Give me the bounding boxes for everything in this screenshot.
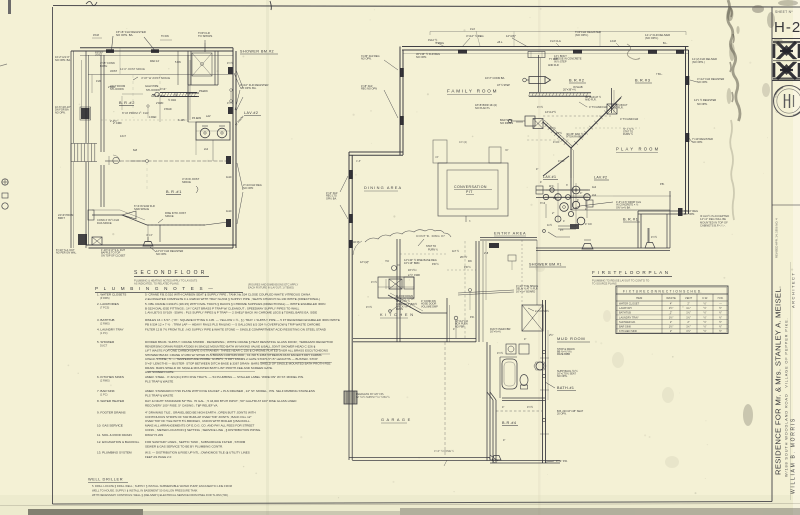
svg-text:S E C O N D F L O O R: S E C O N D F L O O R [134, 270, 205, 276]
svg-text:7. BAR SINK: 7. BAR SINK [97, 389, 116, 393]
svg-text:REVISED APR. 14, 1956 NO. 4: REVISED APR. 14, 1956 NO. 4 [775, 218, 779, 258]
svg-text:+B.L.: +B.L. [497, 41, 503, 44]
svg-text:4'-8": 4'-8" [356, 160, 361, 163]
svg-text:7 B.L.: 7 B.L. [656, 73, 663, 76]
svg-text:B.R.#1: B.R.#1 [166, 189, 182, 194]
svg-text:4": 4" [503, 439, 505, 442]
svg-text:NO OPN. BA.: NO OPN. BA. [116, 33, 134, 37]
svg-text:NO OPN: NO OPN [243, 186, 253, 190]
svg-text:2'CRD: 2'CRD [108, 86, 115, 89]
svg-text:3"×4: 3"×4 [540, 202, 546, 205]
svg-text:5. SHOWER: 5. SHOWER [97, 340, 115, 344]
svg-text:4"×4": 4"×4" [160, 87, 166, 91]
svg-text:LAV: LAV [206, 115, 211, 118]
svg-text:CABINETS B.P.¹,²,³,⁴.: CABINETS B.P.¹,²,³,⁴. [700, 224, 726, 228]
svg-text:ON ½×½ BA.: ON ½×½ BA. [616, 205, 631, 209]
svg-text:B.R.#2: B.R.#2 [569, 78, 584, 83]
svg-text:4"×½: 4"×½ [227, 101, 234, 105]
svg-text:4x10: 4x10 [226, 210, 232, 213]
svg-text:W/188 SOUTH WOODLAND ROAD VI: W/188 SOUTH WOODLAND ROAD VILLAGE OF PEP… [784, 318, 789, 477]
svg-text:16"×16" BRD.: 16"×16" BRD. [404, 261, 420, 265]
svg-text:RESIDENCE FOR Mr. & Mrs. ST: RESIDENCE FOR Mr. & Mrs. STANLEY A. MEIS… [774, 286, 783, 475]
svg-text:REG NO OPN: REG NO OPN [361, 88, 377, 91]
svg-text:4"RAD: 4"RAD [164, 108, 172, 111]
svg-text:4"×½: 4"×½ [366, 305, 373, 309]
svg-text:½": ½" [703, 320, 706, 324]
svg-text:P.D.½: P.D.½ [432, 262, 440, 266]
svg-text:AND FLR: AND FLR [548, 64, 559, 67]
svg-text:4" TO AND FLR: 4" TO AND FLR [620, 117, 638, 121]
svg-text:½": ½" [703, 306, 706, 310]
svg-text:WC: WC [553, 197, 557, 200]
svg-text:TO SPKRS: TO SPKRS [198, 34, 212, 38]
svg-text:4"×12" ½ REG: 4"×12" ½ REG [466, 34, 484, 38]
svg-text:NO PLAN TL: NO PLAN TL [475, 106, 491, 110]
svg-text:½": ½" [703, 301, 706, 305]
svg-text:4"×½: 4"×½ [497, 351, 504, 355]
svg-text:BOTH: BOTH [100, 64, 107, 68]
svg-text:12"×(8)″: 12"×(8)″ [506, 34, 516, 38]
svg-text:2": 2" [552, 212, 554, 215]
svg-text:5 DN: 5 DN [175, 61, 181, 64]
svg-text:ON TOP OF CLOSET: ON TOP OF CLOSET [101, 254, 126, 257]
svg-text:11. SOIL & ROOF DRAIN: 11. SOIL & ROOF DRAIN [97, 433, 132, 437]
svg-text:PLAY ROOM: PLAY ROOM [616, 147, 660, 152]
svg-text:VOLUME DMP: VOLUME DMP [421, 305, 438, 308]
svg-text:NO OPN.: NO OPN. [55, 111, 66, 114]
svg-text:(NO OPN.): (NO OPN.) [645, 36, 658, 40]
svg-text:ARCHITECT: ARCHITECT [791, 272, 796, 308]
svg-text:WELL TO HOUSE. SUPPLY § INSTA: WELL TO HOUSE. SUPPLY § INSTALL IN BASEM… [92, 488, 198, 492]
svg-text:4. LAUNDRY TRAY: 4. LAUNDRY TRAY [97, 328, 124, 332]
svg-text:2": 2" [687, 320, 689, 324]
svg-text:½": ½" [719, 329, 722, 333]
svg-text:1 AN·LB70 5 SY109 · 55W½ :: 1 AN·LB70 5 SY109 · 55W½ : PLS SUPPLY PI… [145, 311, 317, 315]
svg-text:12"×(2)″: 12"×(2)″ [360, 261, 369, 264]
svg-text:ENTRY AREA: ENTRY AREA [494, 231, 526, 236]
svg-text:1¼": 1¼" [686, 325, 691, 329]
svg-text:½": ½" [719, 306, 722, 310]
svg-text:LAUNDRY TRAY: LAUNDRY TRAY [619, 315, 639, 319]
svg-text:SHOWER BM.#1: SHOWER BM.#1 [529, 263, 562, 267]
svg-text:SHOWER HD.: SHOWER HD. [619, 320, 636, 324]
svg-text:6. KITCHEN SINKS: 6. KITCHEN SINKS [97, 375, 124, 379]
svg-text:NO FBR: NO FBR [455, 325, 465, 328]
svg-text:LAV.#2: LAV.#2 [244, 111, 258, 115]
svg-text:14'-6" JOIST SPACE: 14'-6" JOIST SPACE [120, 67, 145, 71]
svg-text:4 RAD: 4 RAD [149, 116, 157, 119]
svg-text:1½": 1½" [669, 315, 674, 319]
svg-text:(NO OPN.): (NO OPN.) [692, 60, 705, 64]
svg-text:UP: UP [435, 156, 439, 159]
svg-text:B.R.#2: B.R.#2 [119, 100, 135, 105]
svg-text:(7 PCS): (7 PCS) [100, 306, 109, 310]
svg-text:IN SLAB: IN SLAB [573, 86, 583, 89]
svg-text:IN ½ STEP: IN ½ STEP [554, 59, 567, 63]
svg-text:BATH.#1: BATH.#1 [557, 386, 574, 390]
svg-text:WASTE: WASTE [666, 296, 676, 300]
svg-text:NO OPN.: NO OPN. [416, 55, 427, 59]
svg-text:WATER CLOSET: WATER CLOSET [619, 301, 640, 305]
svg-text:JOIST: JOIST [110, 70, 118, 73]
svg-text:2·ELONGATED COMPLETE F.1·GWD1: 2·ELONGATED COMPLETE F.1·GWD10 WITH TRAY… [145, 297, 320, 301]
svg-text:ITEM: ITEM [636, 296, 643, 300]
svg-text:BRKT: BRKT [58, 216, 65, 220]
svg-text:4'x4' CLG: 4'x4' CLG [550, 40, 561, 43]
svg-text:P.T.: P.T. [560, 229, 564, 232]
svg-text:2": 2" [687, 301, 689, 305]
svg-text:DN: DN [468, 260, 472, 263]
svg-text:FAMILY ROOM: FAMILY ROOM [447, 89, 498, 94]
svg-text:16'×(2): 16'×(2) [459, 140, 467, 144]
svg-text:—: — [719, 302, 722, 305]
svg-text:B.L.: B.L. [663, 42, 668, 45]
svg-text:4"×4" P.D.: 4"×4" P.D. [556, 459, 568, 463]
svg-text:AND FLR.: AND FLR. [585, 99, 597, 102]
svg-text:2": 2" [670, 320, 672, 324]
svg-text:BATHTUB: BATHTUB [619, 311, 631, 315]
svg-text:1½": 1½" [686, 329, 691, 333]
svg-text:2x4: 2x4 [204, 148, 209, 151]
svg-text:4"×½: 4"×½ [537, 105, 544, 109]
svg-text:16"×½×½: 16"×½×½ [490, 330, 502, 334]
svg-text:GALV PIPE: GALV PIPE [145, 84, 159, 88]
svg-text:NO OPN. BA.: NO OPN. BA. [55, 58, 71, 62]
svg-text:8. WATER HEATER: 8. WATER HEATER [97, 399, 125, 403]
svg-text:2½": 2½" [549, 333, 553, 337]
svg-text:4" CO: 4" CO [585, 223, 592, 226]
svg-text:F I R S T F L O O R P L A: F I R S T F L O O R P L A N [592, 270, 669, 275]
svg-text:14"× ½ REGISTER: 14"× ½ REGISTER [694, 98, 716, 102]
svg-text:K I T C H E N: K I T C H E N [380, 312, 414, 317]
svg-text:4' CO: 4' CO [558, 160, 564, 163]
svg-text:LAV.#1: LAV.#1 [543, 175, 556, 179]
svg-text:FEET AS PAGE 2.0: FEET AS PAGE 2.0 [145, 455, 172, 459]
svg-text:1½": 1½" [669, 306, 674, 310]
svg-text:3. BATHTUB: 3. BATHTUB [97, 318, 114, 322]
svg-text:GRL DOWN: GRL DOWN [151, 95, 165, 98]
svg-text:NO OPN.: NO OPN. [557, 375, 568, 378]
svg-text:(2 RMS): (2 RMS) [100, 379, 110, 383]
svg-text:SPACE: SPACE [182, 180, 191, 184]
svg-text:STL DOWN: STL DOWN [146, 88, 160, 92]
svg-text:16'×7' CONN BA: 16'×7' CONN BA [485, 76, 505, 80]
svg-text:NO DRAIN: NO DRAIN [500, 121, 513, 125]
svg-text:WITH NECESSARY CONTROLS: W: WITH NECESSARY CONTROLS: WELL § (DELIVER… [92, 493, 228, 497]
svg-text:NO ½: NO ½ [549, 126, 556, 130]
svg-text:4'x4': 4'x4' [470, 28, 476, 31]
svg-text:4"×½: 4"×½ [227, 61, 234, 65]
svg-text:FURN ½: FURN ½ [428, 248, 439, 252]
svg-text:(NO OPN.): (NO OPN.) [575, 33, 588, 37]
svg-text:H.W.: H.W. [718, 296, 724, 300]
svg-text:CONN. ; METER LOCATION § SETT: CONN. ; METER LOCATION § SETTING ; SERVI… [145, 428, 261, 432]
svg-text:VENT: VENT [685, 296, 693, 300]
svg-text:½ CRA: ½ CRA [168, 98, 176, 102]
svg-text:LAV.#2: LAV.#2 [594, 176, 607, 180]
svg-text:4"×½: 4"×½ [527, 405, 534, 409]
svg-text:EACH FIXTURE IN LAYOUT; 1 ITEM: EACH FIXTURE IN LAYOUT; 1 ITEM/2) [248, 286, 294, 290]
svg-text:DUA SPACE: DUA SPACE [97, 221, 112, 225]
svg-text:AS INDICATED, TO RELATED PLANS: AS INDICATED, TO RELATED PLANS. [134, 282, 180, 286]
svg-text:P.D.: P.D. [470, 316, 475, 319]
svg-text:H-2: H-2 [774, 19, 800, 36]
svg-text:14"×14"½: 14"×14"½ [545, 110, 557, 114]
svg-text:CONT'D. DWG #7: CONT'D. DWG #7 [416, 234, 445, 238]
svg-text:NO OPN.: NO OPN. [684, 212, 695, 216]
svg-text:(2 RMS): (2 RMS) [100, 322, 110, 326]
svg-text:NO OPN.: NO OPN. [697, 103, 708, 106]
svg-text:W/ ½×½ SUPPLY ½× ½ BA ½·: W/ ½×½ SUPPLY ½× ½ BA ½· [356, 395, 390, 399]
svg-text:4": 4" [502, 406, 504, 409]
svg-text:B.R.#3: B.R.#3 [635, 78, 650, 83]
svg-text:4": 4" [524, 338, 526, 341]
svg-text:12. EXCAVATION & BACKFILL: 12. EXCAVATION & BACKFILL [97, 440, 140, 444]
svg-text:BRDS: BRDS [396, 308, 403, 311]
svg-text:1¼": 1¼" [686, 306, 691, 310]
svg-text:B.R.#1: B.R.#1 [623, 217, 638, 222]
svg-text:NO PER ON WAL.: NO PER ON WAL. [56, 252, 77, 255]
svg-text:RAD 14': RAD 14' [150, 60, 160, 63]
svg-text:TO SOURCE PLANS: TO SOURCE PLANS [592, 282, 617, 286]
svg-text:26'×½': 26'×½' [460, 255, 468, 259]
svg-text:SEWER § GAS SERVICE TO BE B: SEWER § GAS SERVICE TO BE BY PLUMBING CO… [145, 444, 223, 448]
svg-text:SAW SPACE: SAW SPACE [134, 207, 149, 211]
svg-text:FRZE BIBB: FRZE BIBB [557, 353, 570, 356]
svg-text:P L U M B I N G N O T E S: P L U M B I N G N O T E S — [95, 286, 215, 291]
svg-text:14'x7: 14'x7 [120, 135, 127, 138]
svg-text:CONVERSATION: CONVERSATION [454, 185, 487, 189]
svg-text:G A R A G E: G A R A G E [381, 417, 411, 422]
svg-text:4": 4" [670, 301, 672, 305]
svg-text:P3·&DN: P3·&DN [192, 117, 201, 120]
svg-text:4": 4" [536, 168, 538, 171]
svg-text:4"×8" W JOIST SPACE: 4"×8" W JOIST SPACE [141, 76, 170, 80]
svg-text:P.B.: P.B. [660, 183, 665, 186]
svg-text:AND FLR.: AND FLR. [612, 107, 624, 110]
svg-text:NO OPN.: NO OPN. [692, 140, 703, 144]
svg-text:4"×4": 4"×4" [146, 233, 153, 237]
svg-text:4": 4" [580, 192, 582, 195]
svg-text:HW: HW [385, 260, 390, 263]
svg-text:FURN ½: FURN ½ [623, 132, 634, 136]
svg-text:4' CO: 4' CO [553, 141, 559, 144]
svg-text:C.W.: C.W. [702, 296, 708, 300]
svg-text:½": ½" [719, 325, 722, 329]
svg-text:½": ½" [703, 315, 706, 319]
svg-text:1½": 1½" [686, 311, 691, 315]
svg-text:16"×½×″ BOARD: 16"×½×″ BOARD [516, 289, 535, 293]
svg-text:2": 2" [670, 329, 672, 333]
svg-text:½": ½" [719, 320, 722, 324]
svg-text:4'x8: 4'x8 [96, 80, 101, 83]
svg-text:5. DRILL LOCATE § DRILL WELL: 5. DRILL LOCATE § DRILL WELL ; SUPPLY § … [92, 484, 233, 488]
svg-text:36": 36" [505, 149, 509, 152]
svg-text:SPACE: SPACE [165, 214, 174, 218]
svg-text:2-2 CONN½: 2-2 CONN½ [535, 309, 550, 313]
svg-text:1½": 1½" [669, 325, 674, 329]
svg-text:NO OPN.: NO OPN. [361, 58, 372, 61]
svg-text:OVER TOP OF TILE WITH 5½·BROKE: OVER TOP OF TILE WITH 5½·BROKEN , UNION … [145, 419, 251, 423]
svg-text:2'CRD: 2'CRD [156, 102, 163, 105]
svg-text:½": ½" [703, 311, 706, 315]
svg-text:16"×½×: 16"×½× [408, 268, 417, 272]
svg-text:15'x8: 15'x8 [93, 34, 100, 37]
svg-text:PLS TRAP § WASTE: PLS TRAP § WASTE [145, 393, 173, 397]
svg-text:BAR SINK: BAR SINK [619, 325, 631, 329]
svg-text:PS&DN: PS&DN [199, 90, 208, 93]
svg-text:DWGH 5·209: DWGH 5·209 [145, 433, 163, 437]
svg-text:PLS TRAP § WASTE: PLS TRAP § WASTE [145, 379, 173, 383]
svg-text:9. FOOTER DRAINS: 9. FOOTER DRAINS [97, 411, 126, 415]
svg-text:10. GAS SERVICE: 10. GAS SERVICE [97, 424, 123, 428]
svg-text:1½": 1½" [686, 315, 691, 319]
svg-text:K-105: K-105 [178, 119, 185, 122]
svg-text:NO OPN.: NO OPN. [697, 80, 708, 84]
svg-text:½": ½" [703, 329, 706, 333]
svg-text:9'x12' ½: 9'x12' ½ [428, 38, 438, 42]
svg-text:TO DN: TO DN [161, 35, 169, 38]
svg-text:2. LAVATORIES: 2. LAVATORIES [97, 302, 119, 306]
svg-text:13. PLUMBING SYSTEM: 13. PLUMBING SYSTEM [97, 451, 132, 455]
svg-text:1. WATER CLOSETS: 1. WATER CLOSETS [97, 293, 126, 297]
svg-text:6"×8 PROM 1º· FLR: 6"×8 PROM 1º· FLR [122, 111, 149, 115]
svg-text:½": ½" [719, 315, 722, 319]
svg-text:2'-1½": 2'-1½" [110, 119, 117, 123]
svg-text:AND SCREEN GATE·: AND SCREEN GATE· [145, 370, 174, 374]
svg-text:PB 6 534 12 × 7·½· : TRIM LA: PB 6 534 12 × 7·½· : TRIM LAP — HEAVY RA… [145, 322, 320, 326]
svg-text:RECOVERY 100° RISE. 5° CASING: RECOVERY 100° RISE. 5° CASING ; T§P RELI… [145, 403, 218, 407]
svg-text:4x7 ½: 4x7 ½ [452, 249, 460, 253]
svg-text:WELL DRILLER: WELL DRILLER [88, 477, 123, 482]
svg-text:KITCHEN SINK: KITCHEN SINK [619, 329, 637, 333]
svg-text:(1 PC): (1 PC) [100, 393, 108, 397]
svg-text:4"×½: 4"×½ [651, 235, 658, 239]
svg-text:2x4: 2x4 [592, 194, 597, 197]
svg-text:DUCT: DUCT [100, 344, 108, 348]
svg-text:F I X T U R E C O N N E C T: F I X T U R E C O N N E C T I O N S C H … [623, 289, 702, 293]
svg-text:WILLIAM B. MORRIS: WILLIAM B. MORRIS [791, 417, 797, 494]
svg-text:14'x8: 14'x8 [610, 40, 617, 43]
svg-text:PIT: PIT [466, 190, 473, 194]
svg-text:AT ½ STEP: AT ½ STEP [497, 83, 510, 87]
svg-text:(1 PC): (1 PC) [100, 331, 108, 335]
svg-text:B.R.#4: B.R.#4 [502, 421, 517, 425]
svg-text:MUD ROOM: MUD ROOM [557, 336, 585, 341]
svg-text:4" TO AND FLR: 4" TO AND FLR [589, 105, 607, 109]
svg-text:OPN. BA.: OPN. BA. [326, 197, 337, 200]
svg-text:2-½" CWR: 2-½" CWR [408, 273, 420, 277]
svg-text:4x4: 4x4 [592, 186, 597, 189]
svg-text:FILTER 12 B 7½ FROM TILE ;: FILTER 12 B 7½ FROM TILE ; NO SUPPLY PIP… [145, 328, 327, 332]
svg-text:NO OPN.: NO OPN. [156, 252, 167, 256]
svg-text:4"×4" ½ DOME ½: 4"×4" ½ DOME ½ [434, 449, 455, 453]
svg-text:4x10: 4x10 [226, 176, 232, 179]
svg-text:DINING AREA: DINING AREA [364, 185, 402, 190]
svg-text:½": ½" [719, 311, 722, 315]
svg-text:2'-8: 2'-8 [484, 252, 489, 255]
svg-text:½": ½" [703, 325, 706, 329]
svg-text:SHEET Nº: SHEET Nº [775, 10, 793, 14]
svg-text:SHOWER BM.#2: SHOWER BM.#2 [240, 50, 274, 54]
svg-text:20 OPN.: 20 OPN. [557, 413, 567, 416]
svg-text:6x8: 6x8 [133, 149, 138, 152]
svg-text:4"×½: 4"×½ [371, 280, 378, 284]
svg-text:LAVATORY: LAVATORY [619, 306, 632, 310]
svg-text:JOIST: JOIST [95, 54, 103, 57]
